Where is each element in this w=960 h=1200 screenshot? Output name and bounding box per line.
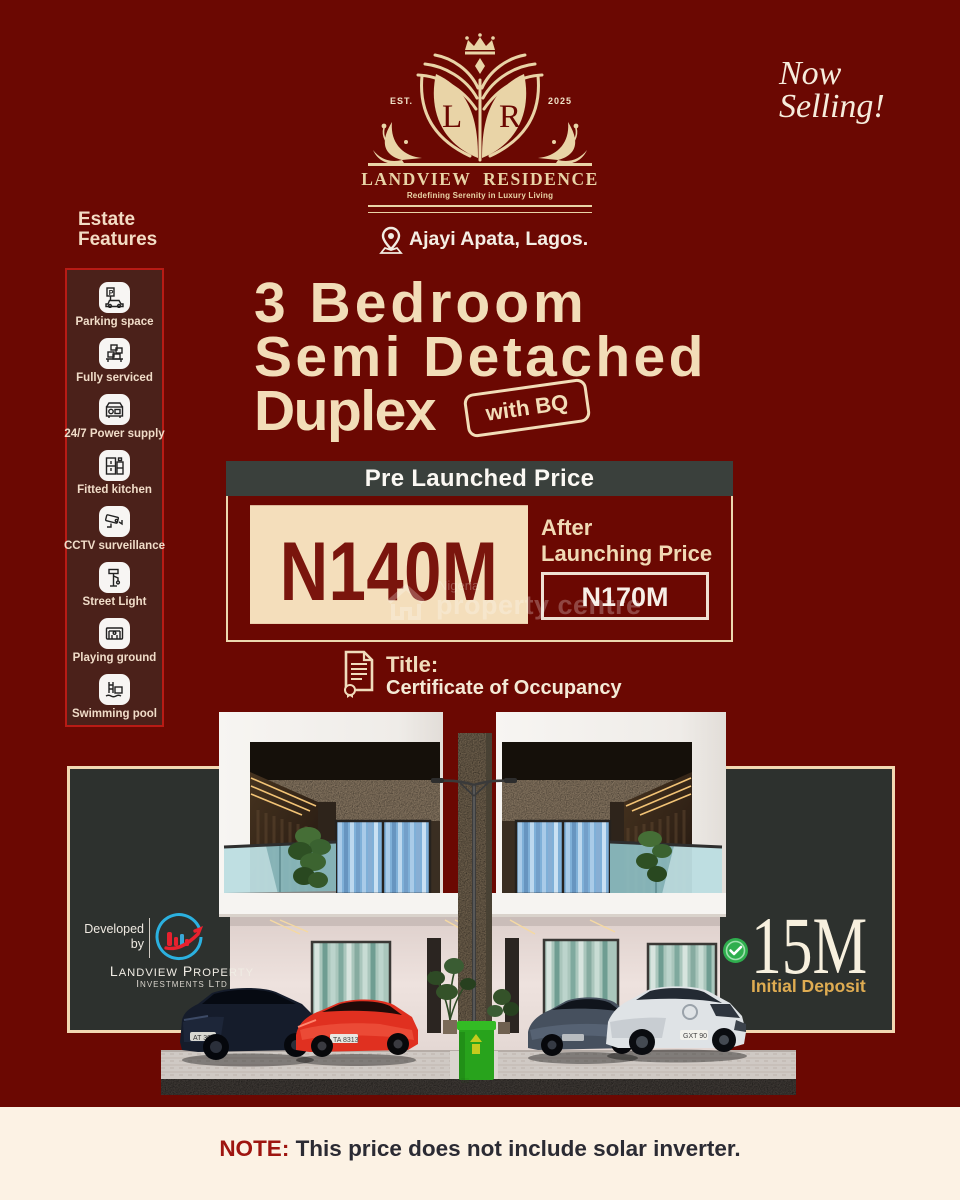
- svg-text:GXT 90: GXT 90: [683, 1033, 707, 1040]
- svg-text:L: L: [442, 99, 462, 135]
- svg-text:R: R: [499, 99, 521, 135]
- svg-text:TA 8313: TA 8313: [333, 1037, 359, 1044]
- svg-text:P: P: [109, 290, 114, 297]
- svg-text:2025: 2025: [548, 96, 572, 106]
- svg-text:EST.: EST.: [390, 96, 413, 106]
